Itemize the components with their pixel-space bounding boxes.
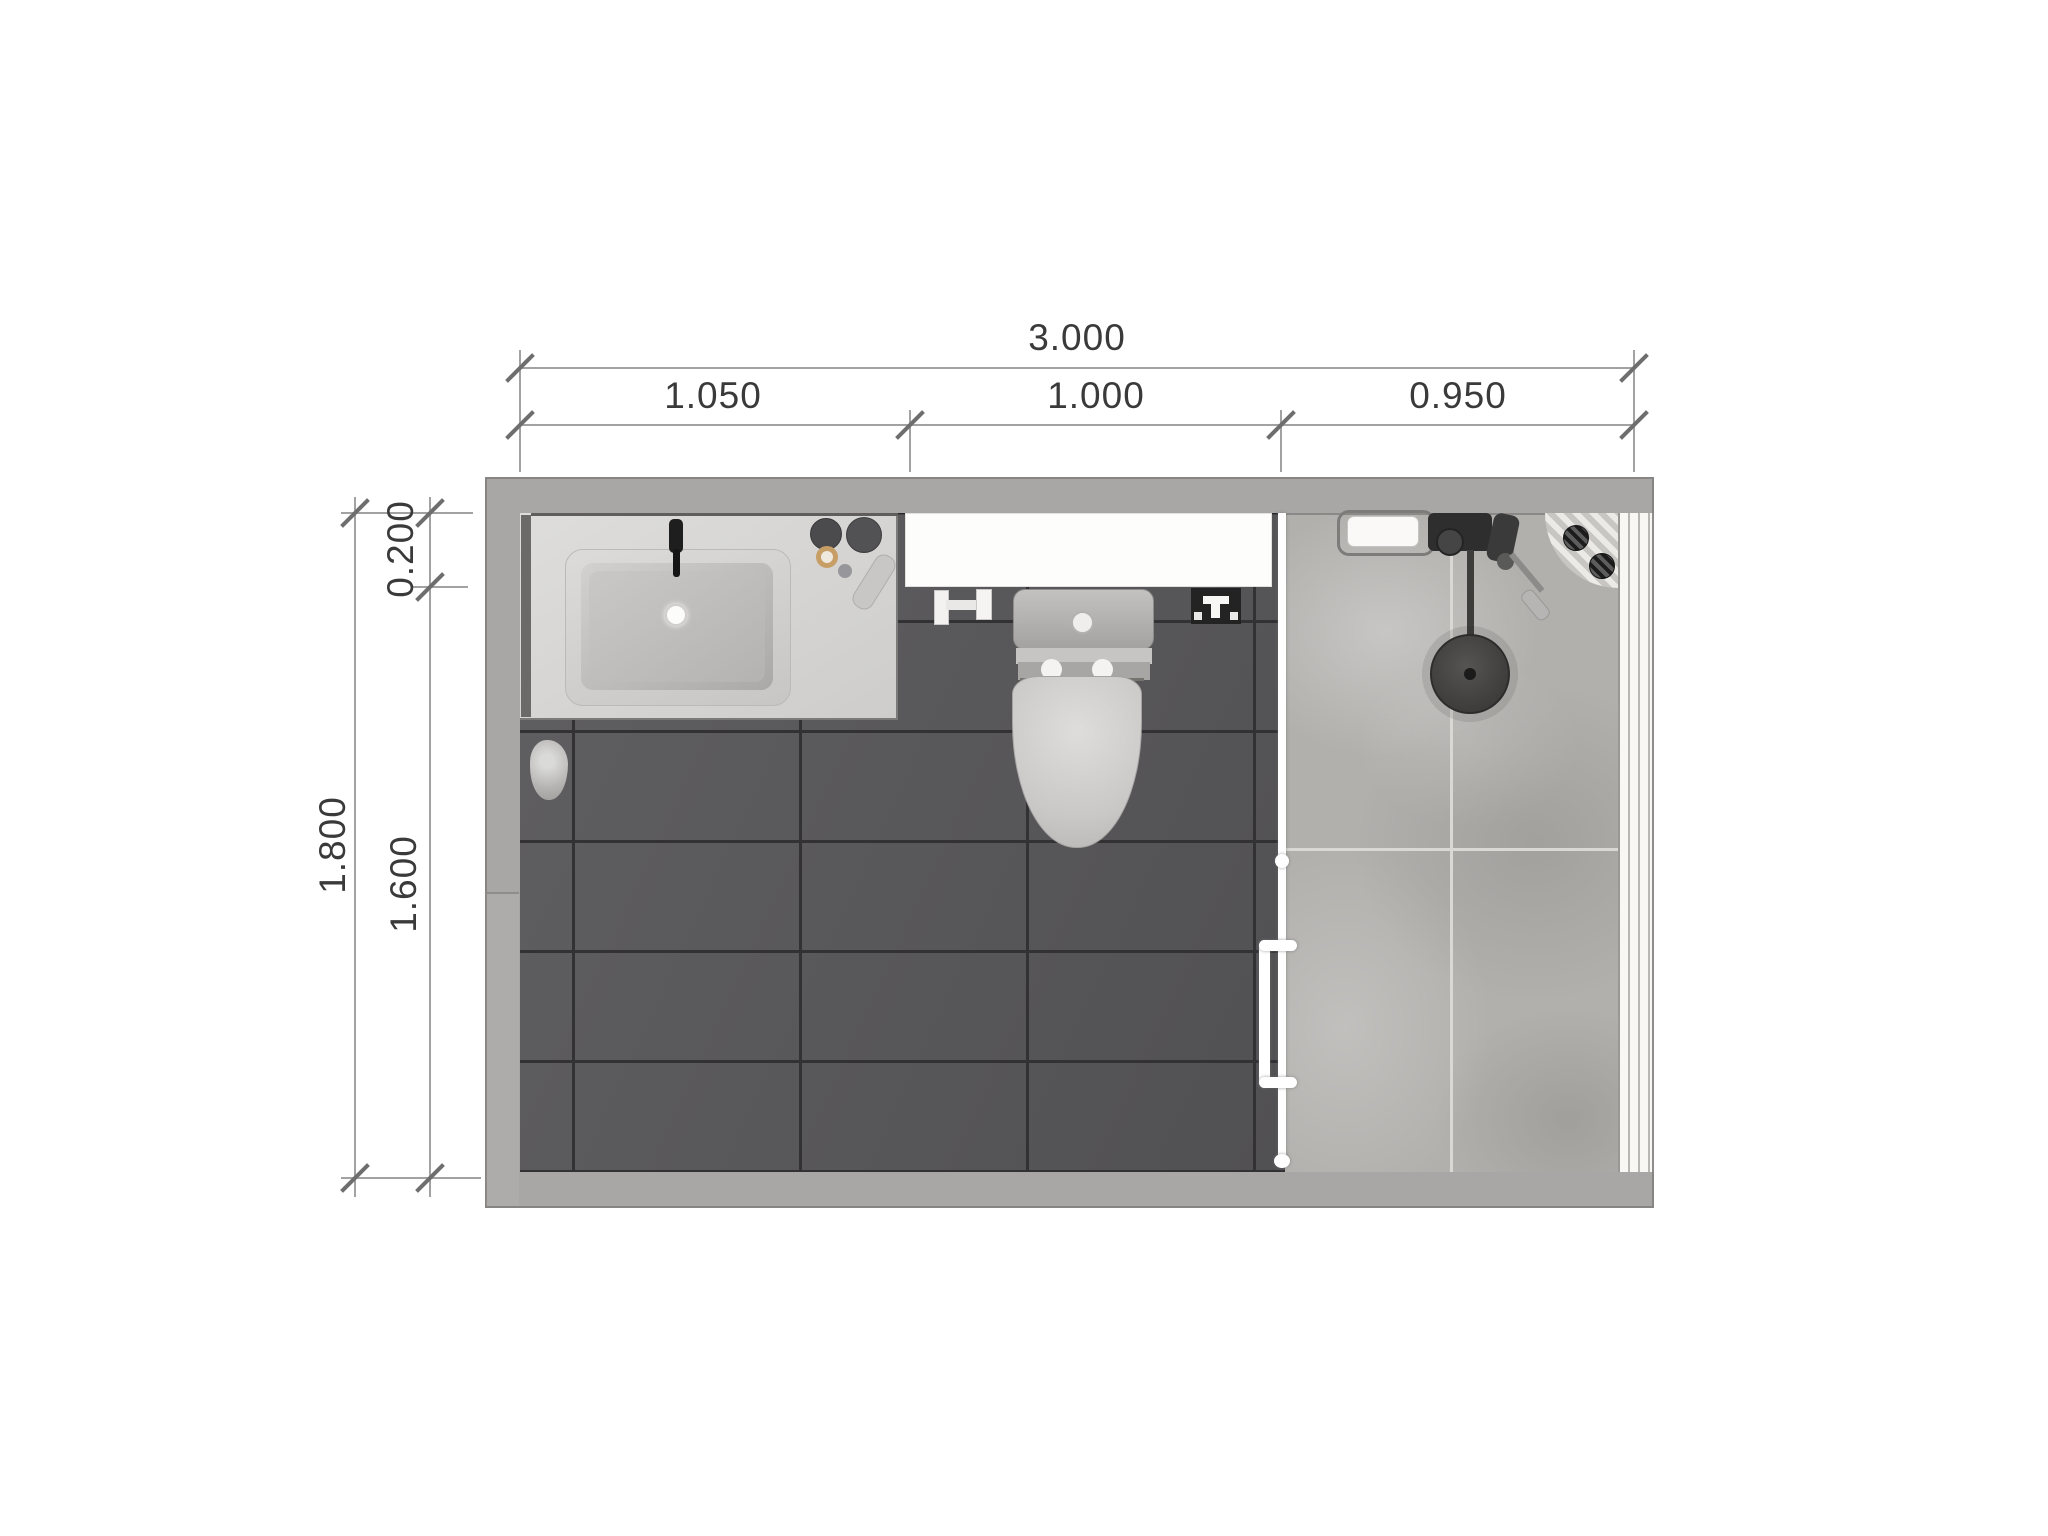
shower-door-handle [1259,940,1270,1088]
sink-basin-bottom [589,571,765,682]
floor-plan-canvas: 3.000 1.050 1.000 0.950 1.800 0.200 1.60… [0,0,2048,1536]
soap-tray [1347,516,1419,547]
corner-drain-caddy [1545,513,1618,588]
soap-dish-icon [816,546,838,568]
accessory-dot-icon [838,564,852,578]
counter-side-panel [521,515,531,717]
glass-hinge-dot [1275,854,1289,868]
paper-holder-bar [946,600,978,610]
dim-label-total-width: 3.000 [927,318,1227,358]
extension-line [341,1177,481,1179]
bidet-sprayer-detail [1194,612,1202,620]
bidet-sprayer-detail [1203,596,1229,604]
faucet-icon [669,519,683,553]
dim-label-segment-shower: 0.950 [1308,376,1608,416]
dim-label-segment-counter-depth: 0.200 [381,399,421,699]
dim-label-segment-vanity: 1.050 [563,376,863,416]
corner-caddy-item-icon [1563,525,1589,551]
dim-line-left-overall [354,497,356,1197]
counter-back-edge [531,513,898,516]
extension-line [909,410,911,472]
shower-door-handle-arm [1259,940,1297,951]
shower-head-center-dot [1464,668,1476,680]
dim-line-top-segments [520,424,1634,426]
left-wall-lower-shade [486,894,519,1206]
shower-arm [1467,550,1474,644]
extension-line [1280,410,1282,472]
shower-glass-partition [1278,513,1286,1163]
dim-label-total-depth: 1.800 [313,695,353,995]
louvered-panel [1618,513,1654,1172]
bidet-sprayer-detail [1230,612,1238,620]
corner-caddy-item-icon [1589,553,1615,579]
dim-line-left-segments [429,497,431,1197]
dim-label-segment-room-depth: 1.600 [384,734,424,1034]
sink-drain [665,604,687,626]
extension-line [413,586,468,588]
dim-label-segment-toilet: 1.000 [946,376,1246,416]
dim-line-top-overall [520,367,1634,369]
shower-mixer-knob [1436,528,1464,556]
shelf-over-toilet [905,513,1272,587]
faucet-spout [673,549,680,577]
bidet-sprayer-detail [1211,604,1220,618]
flush-button-icon [1071,611,1094,634]
shower-door-handle-arm [1259,1077,1297,1088]
paper-holder-roll [976,589,992,620]
glass-bottom-cap [1274,1154,1290,1168]
accessory-jar-icon [846,517,882,553]
stone-grout-horizontal [1285,848,1618,851]
stone-grout-vertical [1450,513,1453,1172]
